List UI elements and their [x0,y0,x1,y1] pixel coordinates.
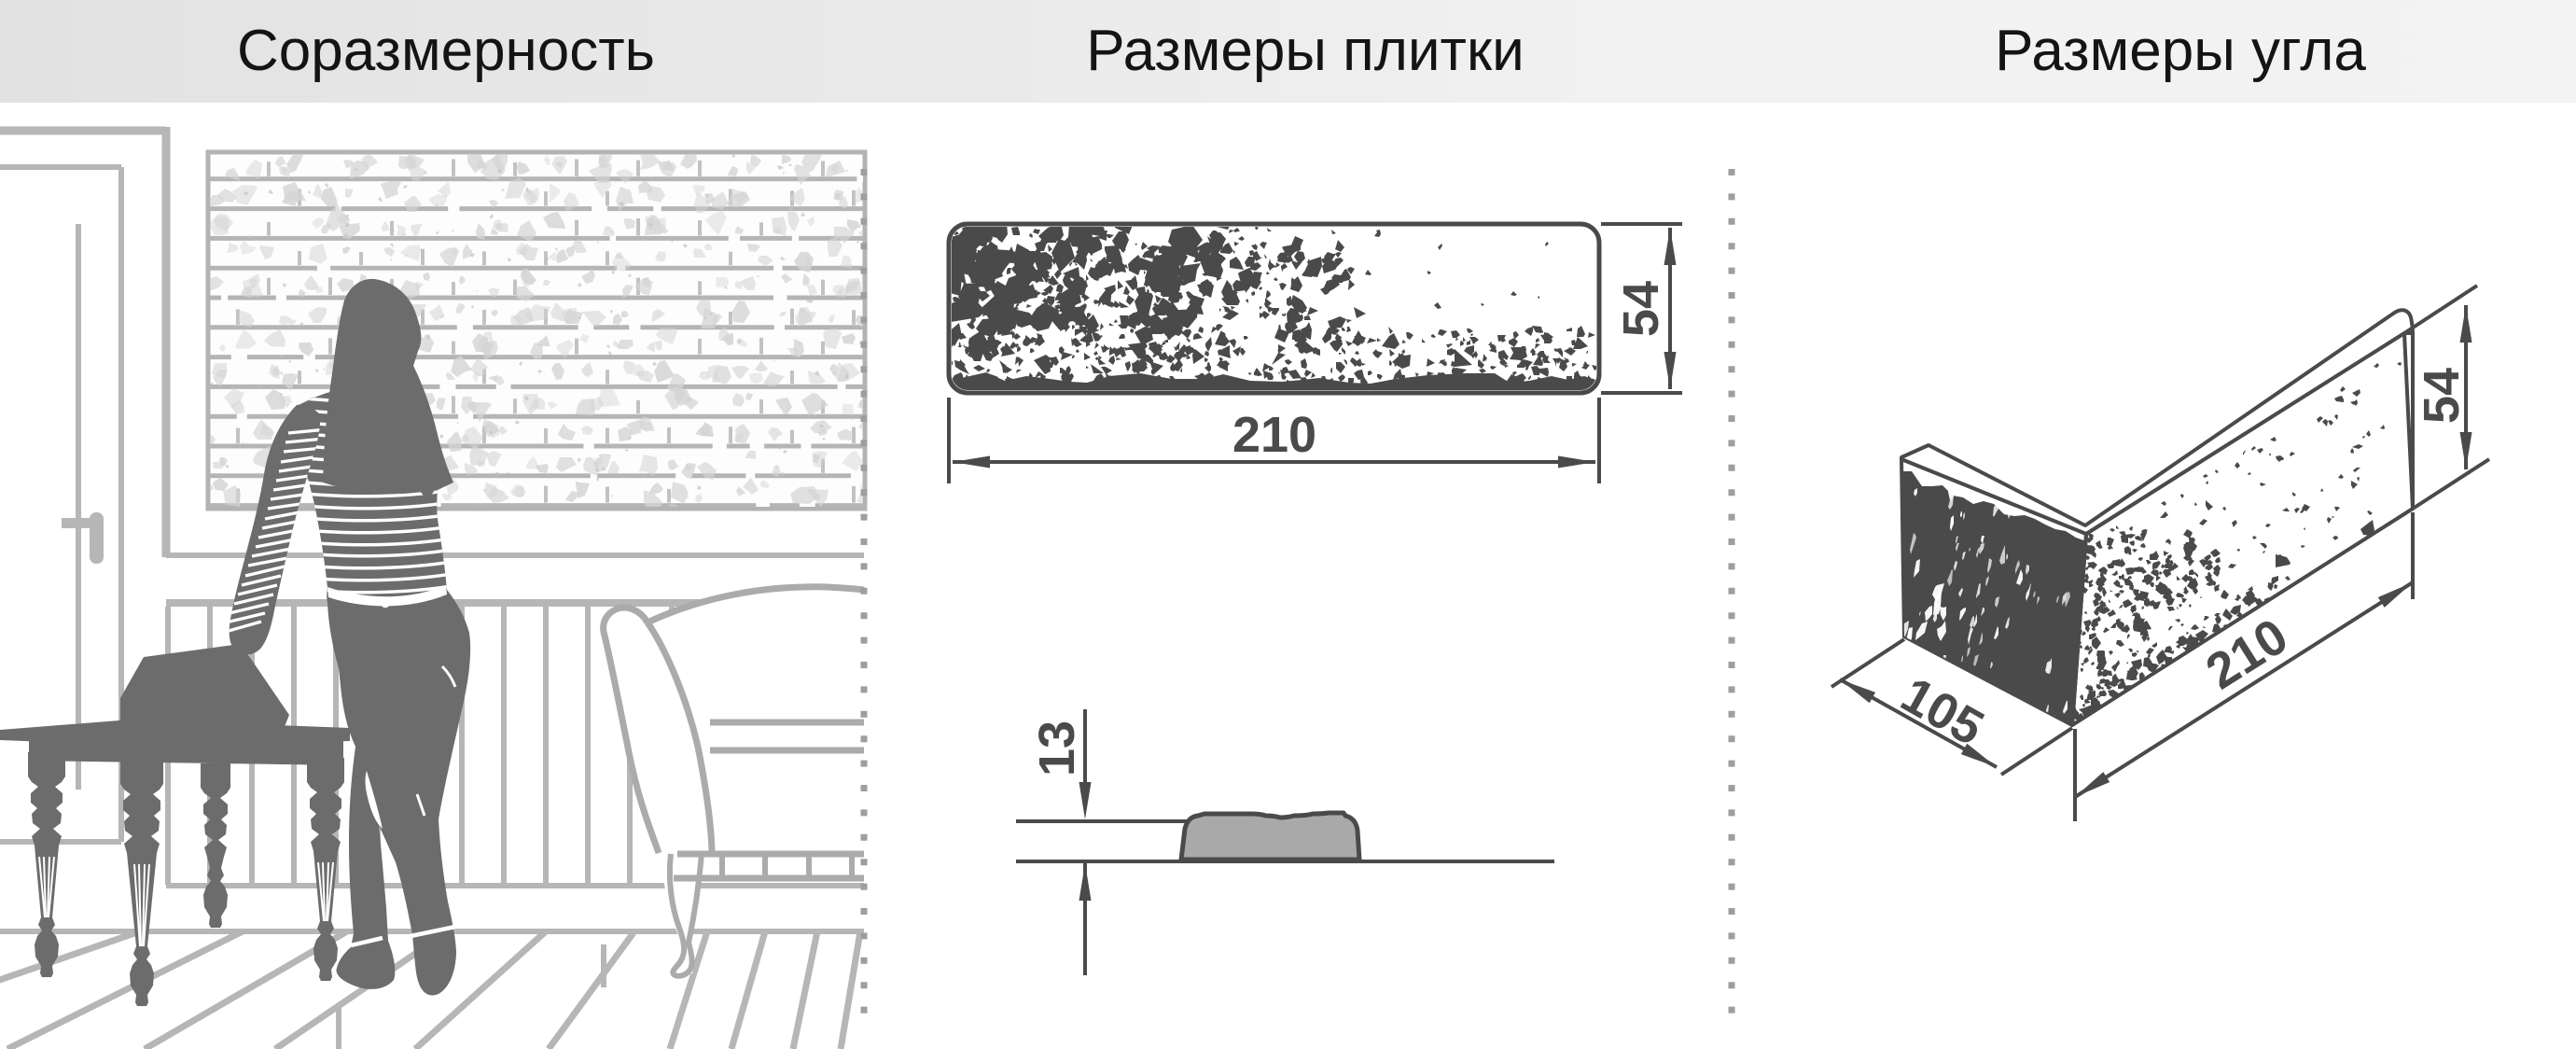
svg-text:13: 13 [1029,720,1085,776]
svg-text:Соразмерность: Соразмерность [237,19,655,83]
svg-text:210: 210 [1232,407,1316,463]
svg-text:Размеры плитки: Размеры плитки [1086,19,1524,83]
svg-text:54: 54 [2414,368,2470,424]
svg-text:54: 54 [1613,281,1669,337]
svg-text:Размеры угла: Размеры угла [1995,19,2366,83]
svg-text:105: 105 [1892,666,1993,756]
